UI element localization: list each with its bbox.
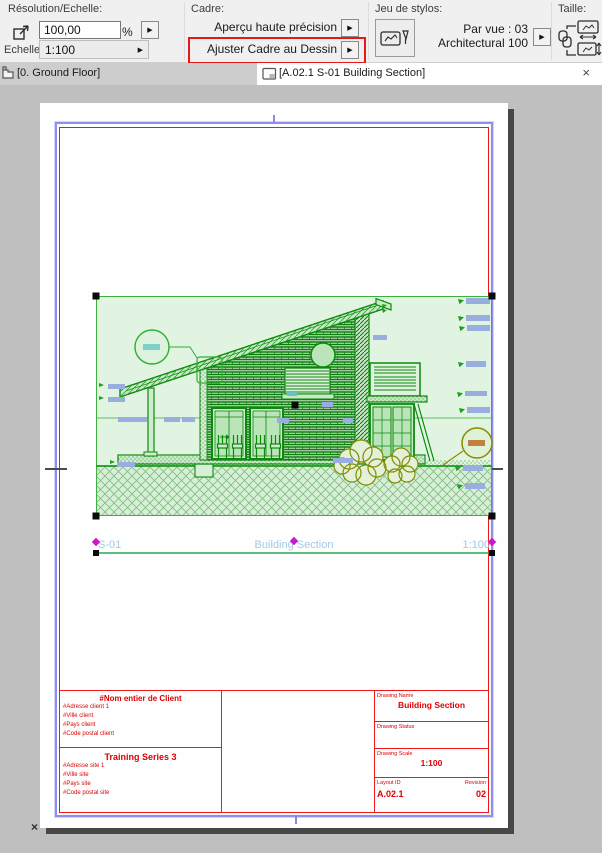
flyout-arrow-icon: ▶ [138,46,143,54]
pen-set-value-line2: Architectural 100 [414,36,528,50]
resize-scale-icon [11,21,33,43]
pen-set-flyout-button[interactable]: ▶ [533,28,551,46]
resolution-flyout-button[interactable]: ▶ [141,21,159,39]
pen-set-value-line1: Par vue : 03 [414,22,528,36]
site-address-line: #Adresse site 1 [60,762,221,771]
percent-label: % [122,25,133,39]
resolution-input[interactable] [39,21,121,39]
floor-plan-tab-icon [2,66,16,80]
client-address-line: #Adresse client 1 [60,703,221,712]
drawing-status-cell: Drawing Status [375,722,488,749]
tab-bar: [0. Ground Floor] [A.02.1 S-01 Building … [0,63,602,85]
scale-dropdown[interactable]: 1:100 ▶ [39,40,149,59]
site-info-cell: Training Series 3 #Adresse site 1 #Ville… [60,748,222,812]
scale-value: 1:100 [45,43,75,57]
round-window [311,343,335,367]
pen-set-icon [379,25,411,51]
scale-label: Echelle: [4,44,43,56]
tab-ground-floor-label: [0. Ground Floor] [17,67,100,79]
title-block: #Nom entier de Client #Adresse client 1 … [60,690,488,812]
balcony [367,363,427,402]
selection-handle[interactable] [292,402,299,409]
page-center-tick-bottom [295,816,297,824]
drawing-scale-value: 1:100 [375,758,488,768]
cadre-section-label: Cadre: [191,3,224,15]
drawing-status-label: Drawing Status [375,722,488,730]
tab-layout-label: [A.02.1 S-01 Building Section] [279,67,425,79]
tab-ground-floor[interactable]: [0. Ground Floor] [0,63,257,85]
drawing-title-id: S-01 [98,539,121,551]
resolution-section-label: Résolution/Echelle: [8,3,102,15]
flyout-arrow-icon: ▶ [539,33,544,41]
page-center-tick-left [45,468,67,470]
site-address-line: #Ville site [60,771,221,780]
pen-set-button[interactable] [375,19,415,57]
project-name: Training Series 3 [60,752,221,762]
client-info-cell: #Nom entier de Client #Adresse client 1 … [60,691,222,748]
fit-frame-flyout-button[interactable]: ▶ [341,41,359,59]
client-name: #Nom entier de Client [60,694,221,703]
selection-handle[interactable] [93,293,100,300]
selection-handle[interactable] [489,293,496,300]
layout-canvas[interactable]: #Nom entier de Client #Adresse client 1 … [0,85,602,853]
toolbar-separator [551,2,552,60]
layout-tab-icon [262,67,277,81]
toolbar-separator [368,2,369,60]
ground-hatch [96,460,492,515]
pen-set-section-label: Jeu de stylos: [375,3,442,15]
layout-id-value: A.02.1 [377,789,404,799]
selection-handle[interactable] [489,513,496,520]
selection-handle[interactable] [489,550,495,556]
size-section-label: Taille: [558,3,586,15]
drawing-scale-cell: Drawing Scale 1:100 [375,749,488,778]
flyout-arrow-icon: ▶ [347,46,352,54]
flyout-arrow-icon: ▶ [347,24,352,32]
options-toolbar: Résolution/Echelle: % ▶ Echelle: 1:100 ▶… [0,0,602,63]
drawing-name-label: Drawing Name [375,691,488,699]
drawing-name-cell: Drawing Name Building Section [375,691,488,722]
selection-handle[interactable] [93,550,99,556]
client-address-line: #Ville client [60,712,221,721]
layout-paper[interactable]: #Nom entier de Client #Adresse client 1 … [40,103,508,828]
pen-set-value: Par vue : 03 Architectural 100 [414,22,528,50]
origin-marker: × [31,820,38,834]
client-address-line: #Code postal client [60,730,221,739]
revision-value: 02 [465,789,486,799]
page-center-tick-top [273,115,275,123]
flyout-arrow-icon: ▶ [147,26,152,34]
size-link-icon[interactable] [556,19,602,61]
site-address-line: #Code postal site [60,789,221,798]
drawing-name-value: Building Section [375,700,488,710]
drawing-scale-label: Drawing Scale [375,749,488,757]
revision-label: Revision [465,780,486,786]
fit-frame-to-drawing-button[interactable]: Ajuster Cadre au Dessin [195,42,337,56]
drawing-building-section[interactable]: S-01 Building Section 1:100 [91,291,501,571]
tab-layout-active[interactable]: [A.02.1 S-01 Building Section] × [257,63,602,85]
tab-close-button[interactable]: × [582,65,590,80]
site-address-line: #Pays site [60,780,221,789]
drawing-title-scale: 1:100 [462,539,490,551]
high-precision-preview-button[interactable]: Aperçu haute précision [195,20,337,34]
client-address-line: #Pays client [60,721,221,730]
toolbar-separator [184,2,185,60]
layout-id-revision-cell: Layout ID A.02.1 Revision 02 [375,778,488,811]
selection-handle[interactable] [93,513,100,520]
drawing-title-bar[interactable]: S-01 Building Section 1:100 [92,537,496,556]
drawing-info-cells: Drawing Name Building Section Drawing St… [374,691,488,812]
layout-id-label: Layout ID [377,780,404,786]
high-precision-flyout-button[interactable]: ▶ [341,19,359,37]
